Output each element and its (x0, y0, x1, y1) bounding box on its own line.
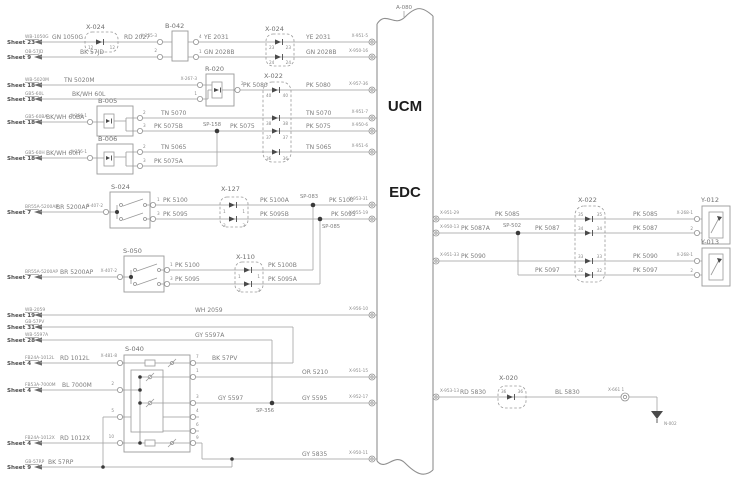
ucm-pin-ref: X-950-13 (440, 224, 459, 229)
ucm-pin-ref: X-956-10 (349, 306, 368, 311)
off-page-arrow-icon (34, 464, 42, 469)
connector-x024-b: X-024 23 23 24 24 (265, 25, 294, 66)
wire-label-pk-5085: PK 5085 (495, 211, 520, 218)
wire-label-pk-5087: PK 5087 (633, 225, 658, 232)
wire-label-tn-5070: TN 5070 (160, 110, 187, 117)
pin-ref: X-267-3 (181, 76, 198, 81)
ground-ref: N-002 (664, 421, 677, 426)
pin-ref: X-407-2 (87, 203, 104, 208)
sheet-code: OB-57JD (25, 49, 44, 55)
pin-number: 38 (283, 121, 289, 126)
wire-label-tn-5065: TN 5065 (305, 144, 332, 151)
sheet-ref-row: Sheet 7 BR55A-5200AP (7, 269, 58, 281)
component-y012: Y-012 (700, 196, 730, 244)
off-page-arrow-icon (34, 440, 42, 445)
pin-number: 40 (266, 93, 272, 98)
connector-x024-a: X-024 12 12 (85, 23, 118, 52)
sheet-label: Sheet 18 (7, 83, 35, 89)
wire-label-pk-5085: PK 5085 (633, 211, 658, 218)
splice-label-sp085: SP-085 (322, 224, 340, 230)
pin-number: 2 (241, 81, 244, 86)
sheet-label: Sheet 4 (7, 441, 31, 447)
off-page-arrow-icon (34, 324, 42, 329)
pin-number: 2 (143, 144, 146, 149)
sheet-ref-row: Sheet 19 WB-2059 (7, 307, 45, 319)
ucm-pin-ref: X-950-6 (352, 122, 369, 127)
pin-number: 33 (597, 254, 603, 259)
pin-number: 2 (690, 226, 693, 231)
wire-label-pk-5087a: PK 5087A (461, 225, 491, 232)
wire-label-br-5200ap: BR 5200AP (56, 204, 90, 211)
ucm-pin-ref: X-951-15 (349, 368, 368, 373)
sheet-label: Sheet 18 (7, 156, 35, 162)
connector-x022-b: X-022 35 35 34 34 33 33 32 32 (575, 196, 605, 282)
sheet-ref-row: Sheet 9 OB-57JD (7, 49, 44, 61)
ucm-pin-ref: X-951-29 (440, 210, 459, 215)
sheet-label: Sheet 19 (7, 313, 35, 319)
pin-number: 3 (157, 211, 160, 216)
wire-label-pk-5097: PK 5097 (535, 267, 560, 274)
connector-ref: X-022 (578, 196, 597, 204)
pin-number: 35 (578, 212, 584, 217)
component-r020: R-020 (205, 65, 234, 106)
sheet-code: BR55A-5200AP (25, 269, 58, 275)
component-s024: S-024 (110, 183, 150, 228)
ucm-pin-ref: X-951-6 (352, 143, 369, 148)
pin-number: 4 (199, 34, 202, 39)
off-page-arrow-icon (34, 387, 42, 392)
pin-number: 3 (143, 158, 146, 163)
sheet-ref-row: Sheet 31 GB-57PV (7, 319, 44, 331)
wire-label-gn-1050g: GN 1050G (52, 34, 83, 41)
pin-number: 23 (269, 45, 275, 50)
wire-label-ye-2031: YE 2031 (305, 34, 331, 41)
component-ref: S-050 (123, 247, 142, 255)
wire-label-pk-5100: PK 5100 (175, 262, 200, 269)
ground-n002: N-002 (651, 411, 677, 426)
sheet-label: Sheet 28 (7, 338, 35, 344)
sheet-ref-row: Sheet 4 FB53A-7000M (7, 382, 56, 394)
pin-ref: X-268-1 (677, 252, 694, 257)
pin-number: 32 (578, 268, 584, 273)
pin-number: 7 (196, 354, 199, 359)
wire-label-tn-5070: TN 5070 (305, 110, 332, 117)
pin-number: 2 (690, 268, 693, 273)
sheet-code: GB5-60H (25, 150, 45, 156)
wiring-diagram-page: A-080 UCM EDC Sheet 23 WB-1050G Sheet 9 … (0, 0, 740, 486)
pin-number: 2 (143, 110, 146, 115)
wire-label-or-5210: OR 5210 (302, 369, 328, 376)
connector-ref: X-024 (86, 23, 105, 31)
wire-label-rd-1012l: RD 1012L (60, 355, 90, 362)
sheet-label: Sheet 7 (7, 210, 31, 216)
pin-ref: X-266-1 (71, 113, 88, 118)
pin-number: 1 (199, 49, 202, 54)
sheet-code: BR55A-5200AP (25, 204, 58, 210)
sheet-code: WB-1050G (25, 34, 49, 40)
pin-ref: X-256-1 (71, 149, 88, 154)
pin-number: 3 (196, 394, 199, 399)
sheet-code: GB-57PV (25, 319, 44, 325)
connector-x127: X-127 1 1 3 3 (220, 185, 248, 228)
sheet-code: FB24A-1012X (25, 435, 55, 441)
sheet-ref-row: Sheet 18 GB5-60L (7, 91, 44, 103)
off-page-arrow-icon (34, 274, 42, 279)
sheet-ref-row: Sheet 18 GB5-60H (7, 150, 45, 162)
sheet-code: GB5-60L (25, 91, 44, 97)
pin-ref: X-407-2 (101, 268, 118, 273)
off-page-arrow-icon (34, 209, 42, 214)
component-b005: B-005 (97, 97, 137, 136)
connector-x110: X-110 1 1 3 3 (235, 253, 263, 293)
wire-label-pk-5100: PK 5100 (163, 197, 188, 204)
pin-number: 2 (111, 381, 114, 386)
sheet-ref-row: Sheet 4 FB24A-1012X (7, 435, 55, 447)
wire-label-wh-2059: WH 2059 (195, 307, 223, 314)
wire-label-br-5200ap: BR 5200AP (60, 269, 94, 276)
component-b006: B-006 (97, 135, 137, 174)
sheet-ref-row: Sheet 18 GB5-60BA (7, 114, 47, 126)
sheet-code: GB-57RP (25, 459, 45, 465)
wire-label-rd-5830: RD 5830 (460, 389, 486, 396)
sheet-label: Sheet 4 (7, 388, 31, 394)
wire-label-pk-5100b: PK 5100B (268, 262, 297, 269)
pin-number: 1 (157, 197, 160, 202)
sheet-label: Sheet 9 (7, 55, 31, 61)
sheet-code: WB-5597A (25, 332, 48, 338)
pin-ref: X-255-3 (141, 33, 158, 38)
ground-icon (651, 411, 663, 419)
pin-number: 1 (238, 274, 241, 279)
wire-label-bk-57pv: BK 57PV (212, 355, 238, 362)
pin-number: 3 (242, 223, 245, 228)
off-page-arrow-icon (34, 360, 42, 365)
pin-number: 36 (283, 156, 289, 161)
pin-number: 24 (286, 60, 292, 65)
ucm-pin-ref: X-957-36 (349, 81, 368, 86)
component-b042: B-042 (165, 22, 188, 61)
wire-label-bk-57jd: BK 57JD (80, 49, 104, 56)
sheet-ref-row: Sheet 23 WB-1050G (7, 34, 49, 46)
ucm-pin-ref: X-953-31 (349, 196, 368, 201)
sheet-code: WB-5020M (25, 77, 49, 83)
off-page-arrow-icon (34, 337, 42, 342)
wire-label-bkwh-60l: BK/WH 60L (72, 91, 106, 98)
wire-label-pk-5075b: PK 5075B (154, 123, 183, 130)
pin-number: 3 (223, 223, 226, 228)
pin-number: 34 (597, 226, 603, 231)
pin-number: 37 (266, 135, 272, 140)
wiring-diagram: A-080 UCM EDC Sheet 23 WB-1050G Sheet 9 … (0, 0, 740, 486)
module-ref-label: A-080 (396, 5, 413, 11)
wire-label-pk-5075: PK 5075 (230, 123, 255, 130)
sheet-label: Sheet 31 (7, 325, 35, 331)
ucm-pin-ref: X-950-16 (349, 48, 368, 53)
component-ref: Y-012 (700, 196, 719, 204)
sheet-label: Sheet 7 (7, 275, 31, 281)
wire-label-gy-5597: GY 5597 (218, 395, 243, 402)
sheet-ref-row: Sheet 7 BR55A-5200AP (7, 204, 58, 216)
pin-number: 36 (518, 389, 524, 394)
pin-number: 38 (266, 121, 272, 126)
sheet-label: Sheet 23 (7, 40, 35, 46)
wire-label-pk-5080: PK 5080 (306, 82, 331, 89)
pin-number: 3 (257, 288, 260, 293)
sheet-ref-row: Sheet 18 WB-5020M (7, 77, 49, 89)
off-page-arrow-icon (34, 312, 42, 317)
connector-ref: X-022 (264, 72, 283, 80)
component-s040: S-040 (123, 345, 190, 452)
pin-number: 4 (196, 408, 199, 413)
pin-number: 2 (154, 48, 157, 53)
sheet-ref-row: Sheet 4 FB24A-1012L (7, 355, 55, 367)
wire-label-gn-2028b: GN 2028B (204, 49, 234, 56)
pin-number: 1 (223, 209, 226, 214)
component-y013: Y-013 (700, 238, 730, 286)
pin-number: 37 (283, 135, 289, 140)
pin-number: 9 (196, 435, 199, 440)
pin-ref: X-268-1 (677, 210, 694, 215)
component-ref: B-005 (98, 97, 117, 105)
component-ref: S-024 (111, 183, 130, 191)
connector-ref: X-024 (265, 25, 284, 33)
wire-label-pk-5075a: PK 5075A (154, 158, 184, 165)
wire-label-rd-1012x: RD 1012X (60, 435, 90, 442)
component-ref: R-020 (205, 65, 224, 73)
sheet-code: WB-2059 (25, 307, 45, 313)
wire-label-pk-5075: PK 5075 (306, 123, 331, 130)
wire-label-pk-5080: PK 5080 (243, 82, 268, 89)
pin-number: 3 (143, 123, 146, 128)
off-page-arrow-icon (34, 54, 42, 59)
component-s050: S-050 (123, 247, 164, 292)
wire-label-tn-5065: TN 5065 (160, 144, 187, 151)
sheet-label: Sheet 18 (7, 120, 35, 126)
wire-label-ye-2031: YE 2031 (203, 34, 229, 41)
sheet-code: FB24A-1012L (25, 355, 55, 361)
pin-number: 3 (170, 276, 173, 281)
splice-label-sp502: SP-502 (503, 223, 521, 229)
sheet-code: GB5-60BA (25, 114, 47, 120)
wire-label-pk-5090: PK 5090 (633, 253, 658, 260)
pin-number: 36 (501, 389, 507, 394)
component-ref: S-040 (125, 345, 144, 353)
wire-label-gy-5597a: GY 5597A (195, 332, 225, 339)
pin-number: 5 (111, 408, 114, 413)
connector-x020: X-020 36 36 (498, 374, 526, 408)
wire-label-pk-5095: PK 5095 (163, 211, 188, 218)
splice-label-sp356: SP-356 (256, 408, 274, 414)
module-name-ucm: UCM (388, 98, 422, 115)
component-ref: B-006 (98, 135, 117, 143)
wire-label-bl-5830: BL 5830 (555, 389, 580, 396)
sheet-references: Sheet 23 WB-1050G Sheet 9 OB-57JD Sheet … (7, 34, 58, 471)
off-page-arrow-icon (34, 155, 42, 160)
module-a080: A-080 UCM EDC (377, 5, 433, 474)
wire-label-bl-7000m: BL 7000M (62, 382, 92, 389)
pin-number: 10 (109, 434, 115, 439)
connector-ref: X-020 (499, 374, 518, 382)
wire-label-pk-5087: PK 5087 (535, 225, 560, 232)
ucm-pin-ref: X-950-11 (349, 450, 368, 455)
sheet-label: Sheet 9 (7, 465, 31, 471)
wire-label-pk-5095b: PK 5095B (260, 211, 289, 218)
ucm-pin-ref: X-951-5 (352, 33, 369, 38)
pin-number: 1 (194, 91, 197, 96)
wire-label-pk-5095: PK 5095 (175, 276, 200, 283)
pin-number: 34 (578, 226, 584, 231)
sheet-ref-row: Sheet 9 GB-57RP (7, 459, 45, 471)
pin-number: 1 (242, 209, 245, 214)
component-ref: Y-013 (700, 238, 719, 246)
wire-label-tn-5020m: TN 5020M (63, 77, 95, 84)
pin-number: 1 (170, 262, 173, 267)
pin-number: 40 (283, 93, 289, 98)
wire-label-pk-5100a: PK 5100A (260, 197, 290, 204)
pin-number: 24 (269, 60, 275, 65)
pin-number: 33 (578, 254, 584, 259)
wire-label-gy-5835: GY 5835 (302, 451, 327, 458)
pin-number: 12 (110, 45, 116, 50)
off-page-arrow-icon (34, 82, 42, 87)
ucm-pin-ref: X-951-33 (440, 252, 459, 257)
ucm-pin-ref: X-952-17 (349, 394, 368, 399)
pin-number: 36 (266, 156, 272, 161)
off-page-arrow-icon (34, 96, 42, 101)
wire-label-pk-5097: PK 5097 (633, 267, 658, 274)
connector-ref: X-110 (236, 253, 255, 261)
connector-ref: X-127 (221, 185, 240, 193)
sheet-code: FB53A-7000M (25, 382, 56, 388)
ucm-pin-ref: X-953-13 (440, 388, 459, 393)
sheet-label: Sheet 4 (7, 361, 31, 367)
splice-label-sp083: SP-083 (300, 194, 318, 200)
terminal-x661: X-661 1 (608, 387, 629, 401)
wire-label-bk-57rp: BK 57RP (48, 459, 74, 466)
ucm-pin-ref: X-951-7 (352, 109, 369, 114)
ucm-pin-ref: X-955-19 (349, 210, 368, 215)
sheet-label: Sheet 18 (7, 97, 35, 103)
pin-number: 35 (597, 212, 603, 217)
off-page-arrow-icon (34, 39, 42, 44)
pin-number: 6 (196, 422, 199, 427)
wire-label-gy-5595: GY 5595 (302, 395, 327, 402)
pin-number: 1 (257, 274, 260, 279)
terminal-ref: X-661 1 (608, 387, 624, 392)
component-ref: B-042 (165, 22, 184, 30)
wire-label-pk-5095a: PK 5095A (268, 276, 298, 283)
pin-number: 23 (286, 45, 292, 50)
wire-label-pk-5090: PK 5090 (461, 253, 486, 260)
sheet-ref-row: Sheet 28 WB-5597A (7, 332, 48, 344)
off-page-arrow-icon (34, 119, 42, 124)
module-name-edc: EDC (389, 184, 421, 201)
pin-ref: X-481-8 (101, 353, 118, 358)
pin-number: 32 (597, 268, 603, 273)
splice-label-sp158: SP-158 (203, 122, 221, 128)
pin-number: 3 (238, 288, 241, 293)
wire-label-gn-2028b: GN 2028B (306, 49, 336, 56)
ucm-pin-refs: X-951-5 X-950-16 X-957-36 X-951-7 X-950-… (349, 33, 459, 455)
pin-number: 1 (196, 368, 199, 373)
